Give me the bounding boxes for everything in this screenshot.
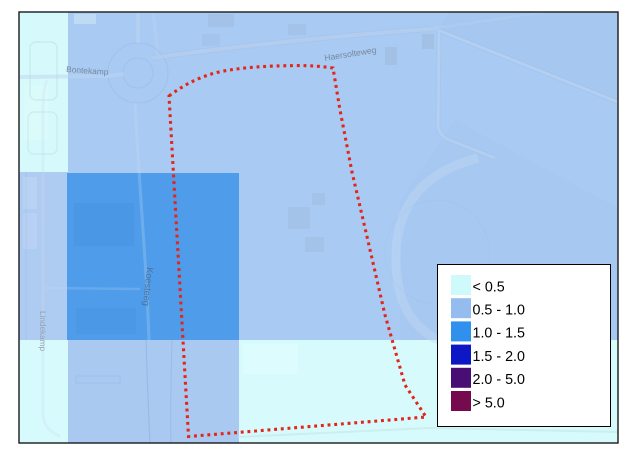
svg-text:< 0.5: < 0.5: [473, 279, 505, 295]
svg-text:2.0 - 5.0: 2.0 - 5.0: [473, 372, 526, 388]
svg-text:> 5.0: > 5.0: [473, 395, 505, 411]
svg-text:Lindekamp: Lindekamp: [38, 311, 47, 352]
svg-text:0.5 - 1.0: 0.5 - 1.0: [473, 303, 526, 319]
svg-text:1.5 - 2.0: 1.5 - 2.0: [473, 349, 526, 365]
svg-text:1.0 - 1.5: 1.0 - 1.5: [473, 326, 526, 342]
